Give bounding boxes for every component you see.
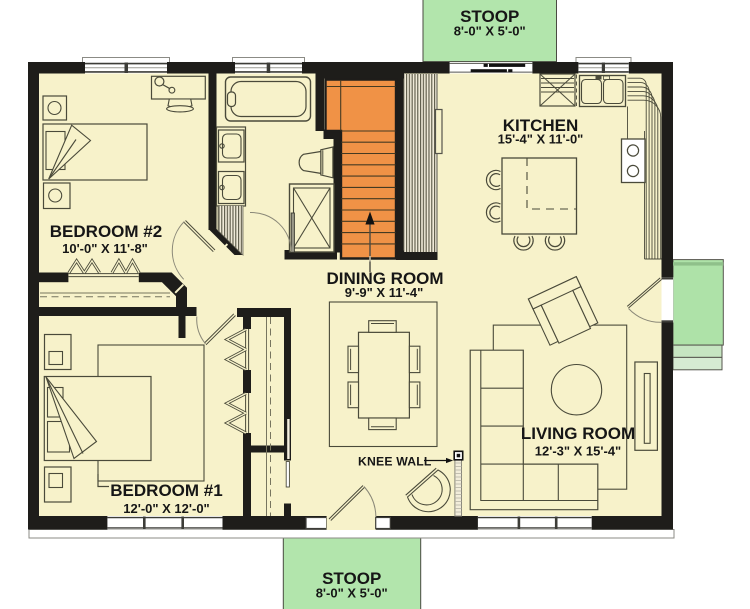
svg-text:12'-3" X 15'-4": 12'-3" X 15'-4" (535, 444, 621, 459)
svg-text:10'-0" X 11'-8": 10'-0" X 11'-8" (62, 241, 148, 256)
svg-text:8'-0" X 5'-0": 8'-0" X 5'-0" (316, 586, 388, 601)
svg-text:BEDROOM #2: BEDROOM #2 (50, 222, 162, 241)
svg-text:KNEE WALL: KNEE WALL (358, 455, 432, 469)
svg-text:LIVING ROOM: LIVING ROOM (521, 424, 635, 443)
svg-text:8'-0" X 5'-0": 8'-0" X 5'-0" (454, 24, 526, 39)
svg-text:12'-0" X 12'-0": 12'-0" X 12'-0" (123, 501, 209, 516)
svg-text:9'-9" X 11'-4": 9'-9" X 11'-4" (345, 285, 424, 300)
svg-text:15'-4" X 11'-0": 15'-4" X 11'-0" (498, 132, 584, 147)
svg-text:BEDROOM #1: BEDROOM #1 (110, 481, 222, 500)
